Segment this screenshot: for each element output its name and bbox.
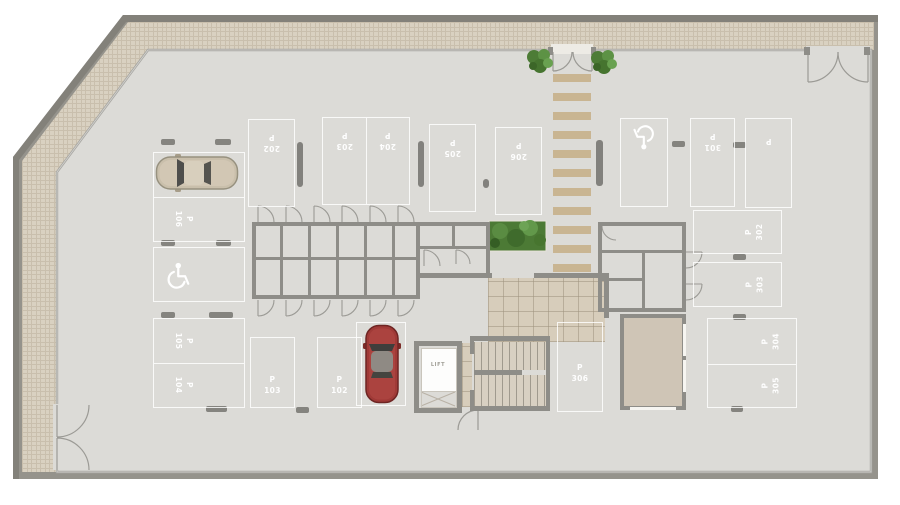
pillar [418,141,424,187]
spot-p: P [516,139,522,150]
parking-spot-206: 206 P [495,127,542,215]
parking-spot-103: P 103 [250,337,295,408]
spot-number: 206 [510,150,527,161]
elevator-wall [414,408,462,413]
spot-number: 305 [771,377,782,394]
spot-number: 203 [336,140,353,151]
utility-room-floor [624,318,682,406]
parking-spot-304-305: P 304 P 305 [707,318,797,408]
stair-wall [470,406,550,411]
parking-spot-205: 205 P [429,124,476,212]
elevator-wall [414,341,419,413]
wall [392,222,395,299]
elevator-wall [457,341,462,413]
wheel-stop [733,254,746,260]
elevator-wall [414,341,462,346]
wheel-stop [672,141,685,147]
spot-p: P [760,383,771,389]
spot-p: P [183,338,194,344]
spot-p: P [577,363,583,374]
wall [620,314,686,318]
staircase-upper-flight [474,342,546,370]
spot-number: 205 [444,147,461,158]
parking-spot-unnumbered: P [745,118,792,208]
spot-p: P [385,129,391,140]
spot-p: P [270,375,276,386]
spot-p: P [337,375,343,386]
pillar [483,179,489,188]
floor-plan: LIFT 202 P 203 P 204 P [0,0,900,505]
spot-number: 106 [172,211,183,228]
spot-number: 204 [379,140,396,151]
stair-wall [546,336,550,411]
spot-p: P [710,130,716,141]
spot-number: 105 [172,333,183,350]
wall [598,222,686,226]
wall [280,222,283,299]
spot-number: 304 [771,333,782,350]
window [683,360,686,392]
striped-walkway [553,74,591,273]
wall [642,250,645,312]
spot-p: P [183,382,194,388]
parking-spot-105-104: P 105 P 104 [153,318,245,408]
spot-p: P [766,136,772,147]
hedge-planter [489,220,546,251]
wall [598,222,602,312]
pillar [297,142,303,187]
spot-number: 103 [264,386,281,397]
spot-number: 306 [572,374,589,385]
spot-p: P [450,136,456,147]
wheelchair-icon [162,260,192,290]
wall [620,314,624,410]
parking-spot-202: 202 P [248,119,295,207]
parking-spot-accessible-left [153,247,245,302]
parking-spot-203-204: 203 P 204 P [322,117,410,205]
parking-spot-302: P 302 [693,210,782,254]
parking-spot-303: P 303 [693,262,782,307]
spot-number: 202 [263,142,280,153]
spot-p: P [269,131,275,142]
elevator-pit [421,391,457,408]
wall [598,278,645,281]
car-silver [155,153,239,193]
spot-number: 303 [755,276,766,293]
spot-number: 302 [755,224,766,241]
spot-number: 301 [704,141,721,152]
pillar [596,140,603,186]
wall [308,222,311,299]
wall [252,222,256,299]
spot-p: P [183,216,194,222]
wall [336,222,339,299]
wheel-stop [296,407,309,413]
spot-p: P [744,282,755,288]
wall [364,222,367,299]
wheelchair-icon [631,124,659,152]
stair-wall [470,336,550,341]
car-red [362,324,402,404]
wheel-stop [161,139,175,145]
staircase-lower-flight [474,375,546,406]
parking-spot-301: 301 P [690,118,735,207]
wall [416,222,420,299]
spot-p: P [744,229,755,235]
wall [682,222,686,312]
parking-spot-accessible-top [620,118,668,207]
elevator-label: LIFT [421,348,455,382]
spot-number: 104 [172,377,183,394]
parking-spot-306: P 306 [557,322,603,412]
wall [452,222,455,249]
spot-number: 102 [331,386,348,397]
spot-p: P [342,129,348,140]
window [630,407,676,410]
spot-p: P [760,339,771,345]
window [683,324,686,356]
wheel-stop [215,139,231,145]
wall [418,273,492,278]
wall [486,222,490,278]
